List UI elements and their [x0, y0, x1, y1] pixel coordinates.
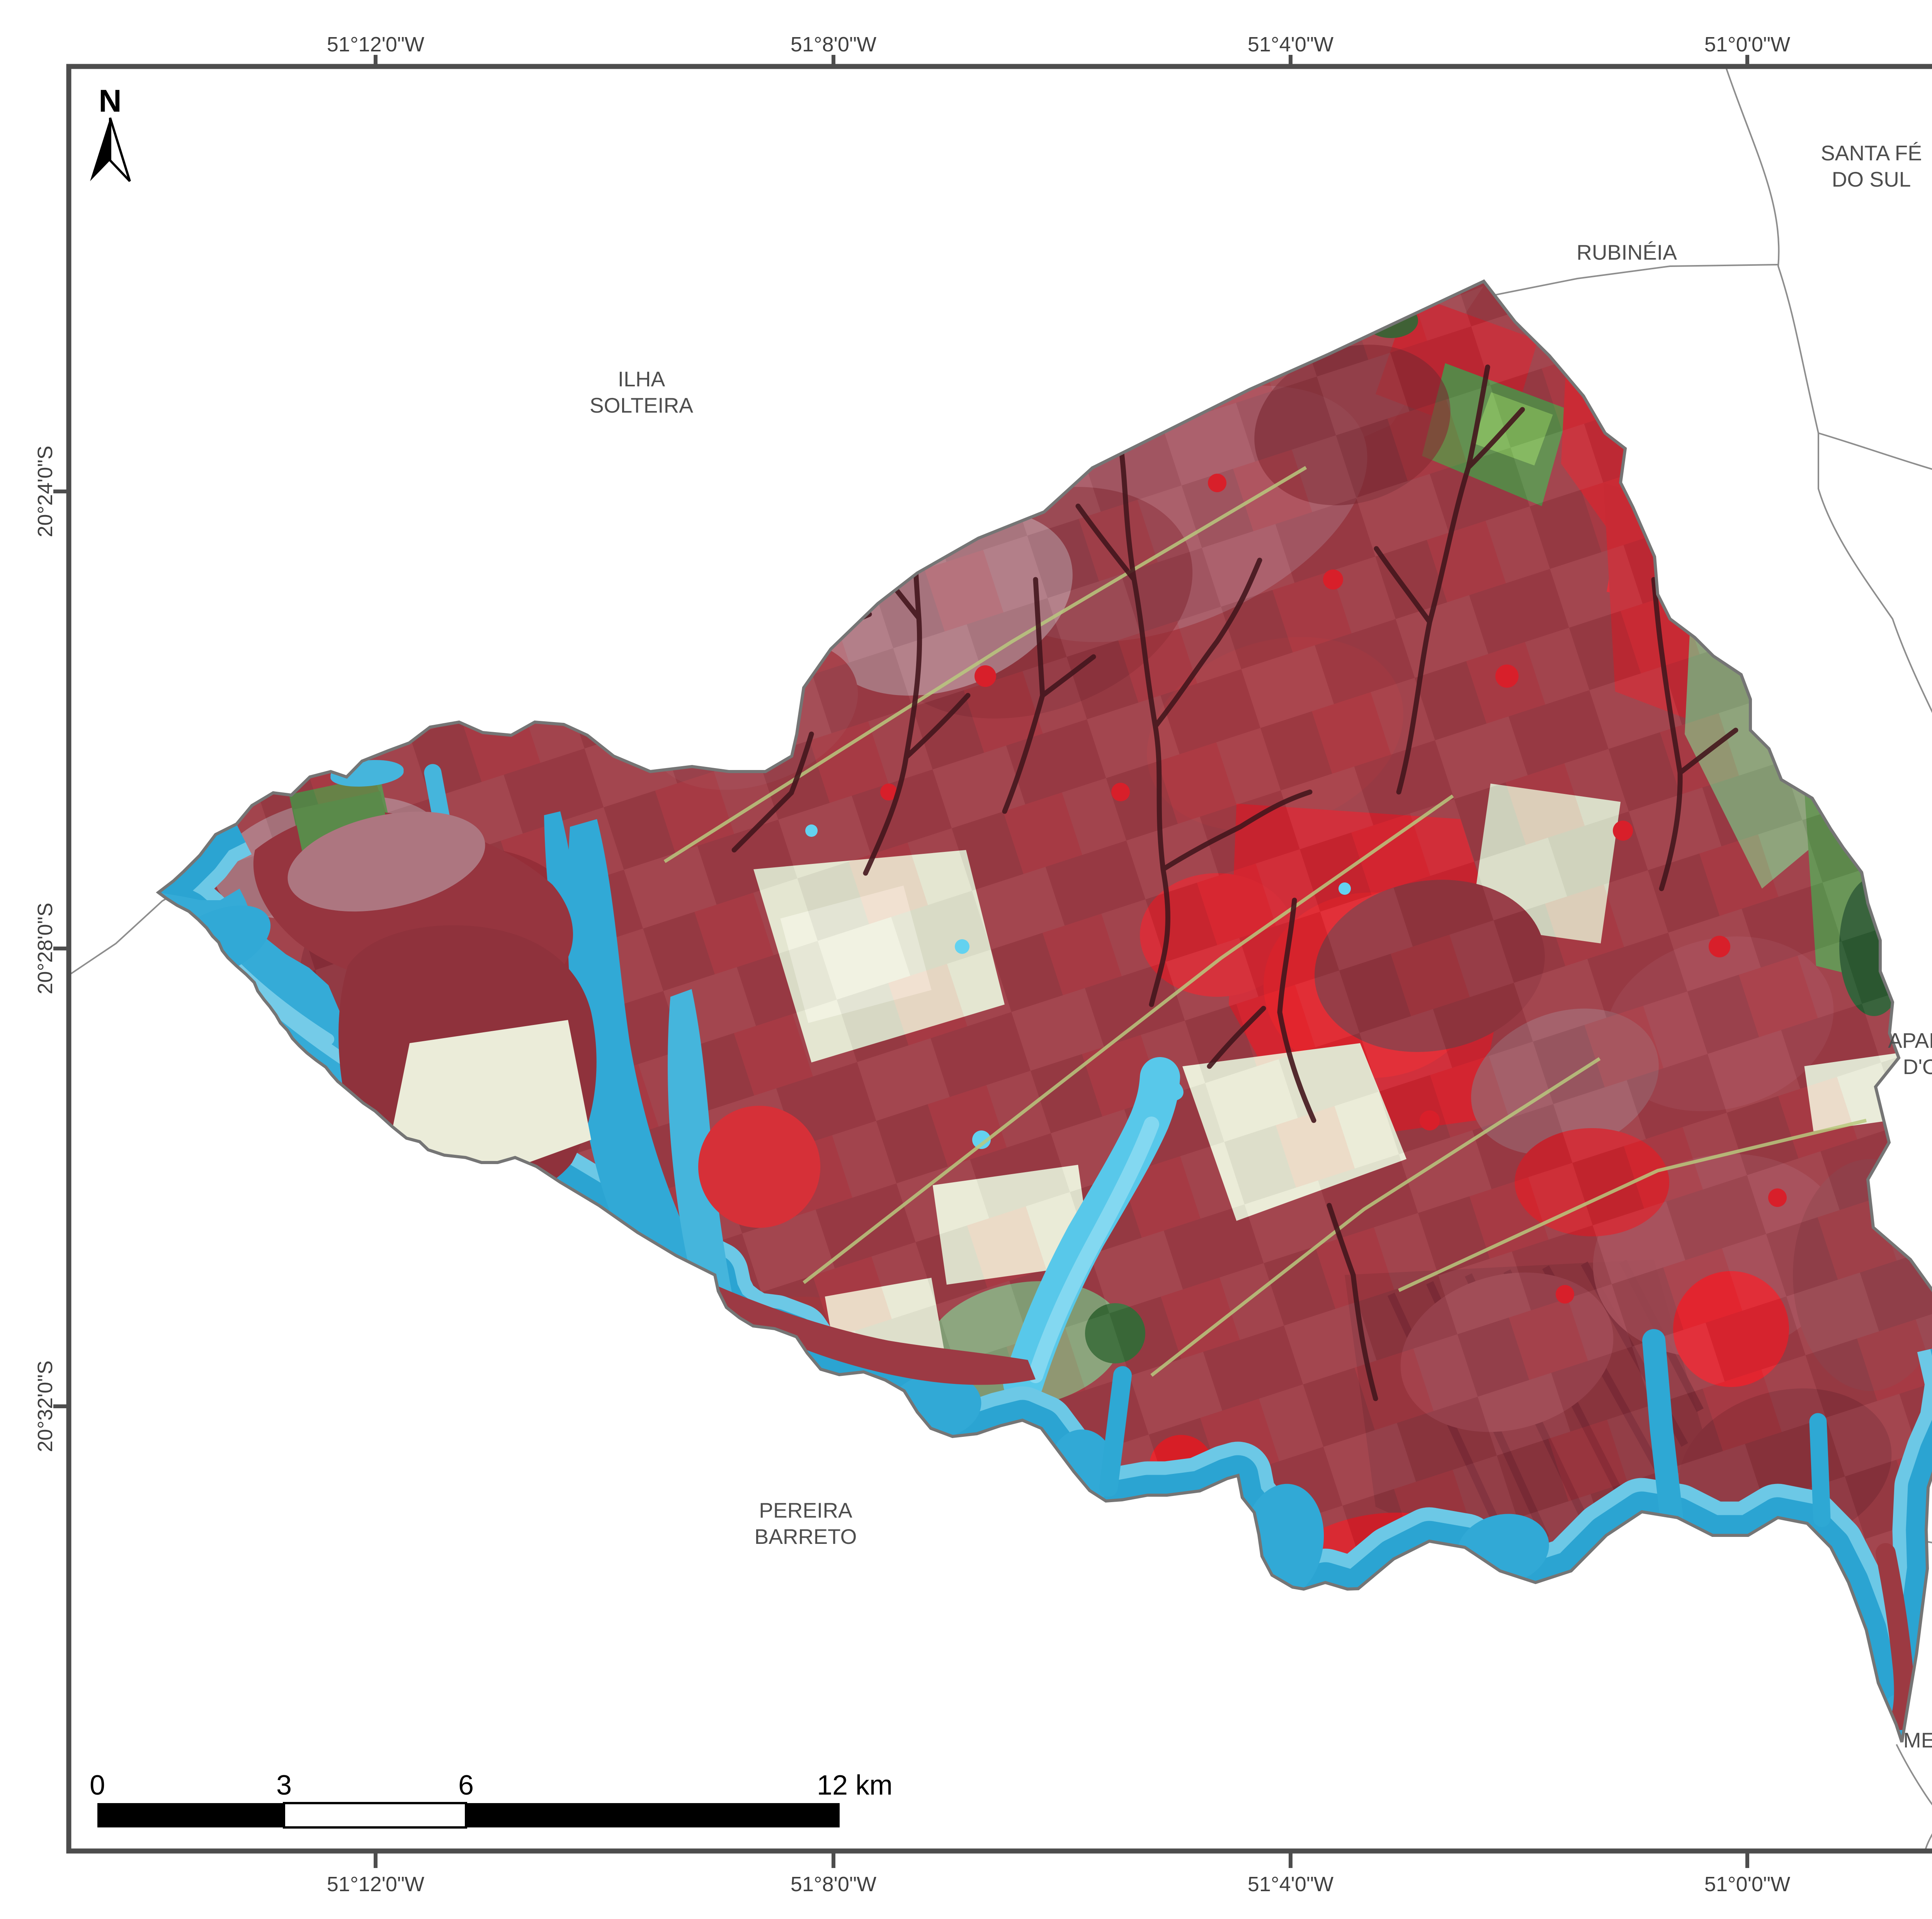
svg-text:MENNUCCI: MENNUCCI — [1903, 1728, 1932, 1752]
svg-text:0: 0 — [90, 1770, 105, 1801]
svg-text:51°0'0"W: 51°0'0"W — [1704, 1873, 1790, 1896]
svg-text:D'OESTE: D'OESTE — [1903, 1055, 1932, 1079]
svg-text:SOLTEIRA: SOLTEIRA — [590, 393, 693, 417]
svg-text:51°4'0"W: 51°4'0"W — [1248, 1873, 1333, 1896]
svg-text:51°4'0"W: 51°4'0"W — [1248, 33, 1333, 56]
svg-text:51°0'0"W: 51°0'0"W — [1704, 33, 1790, 56]
svg-text:SANTA FÉ: SANTA FÉ — [1821, 141, 1922, 165]
svg-text:51°8'0"W: 51°8'0"W — [791, 33, 876, 56]
svg-text:51°12'0"W: 51°12'0"W — [327, 1873, 424, 1896]
svg-text:ILHA: ILHA — [618, 367, 665, 391]
svg-text:20°28'0"S: 20°28'0"S — [34, 903, 57, 994]
svg-text:RUBINÉIA: RUBINÉIA — [1577, 240, 1677, 264]
svg-text:6: 6 — [458, 1770, 474, 1801]
svg-text:12 km: 12 km — [817, 1770, 893, 1801]
svg-text:3: 3 — [276, 1770, 292, 1801]
svg-text:APARECIDA: APARECIDA — [1888, 1028, 1932, 1052]
svg-text:20°32'0"S: 20°32'0"S — [34, 1360, 57, 1452]
svg-text:DO SUL: DO SUL — [1832, 167, 1911, 191]
svg-text:20°24'0"S: 20°24'0"S — [34, 445, 57, 537]
svg-text:51°12'0"W: 51°12'0"W — [327, 33, 424, 56]
svg-text:BARRETO: BARRETO — [755, 1525, 857, 1548]
svg-text:PEREIRA: PEREIRA — [759, 1498, 852, 1522]
svg-text:51°8'0"W: 51°8'0"W — [791, 1873, 876, 1896]
svg-text:N: N — [99, 83, 121, 119]
